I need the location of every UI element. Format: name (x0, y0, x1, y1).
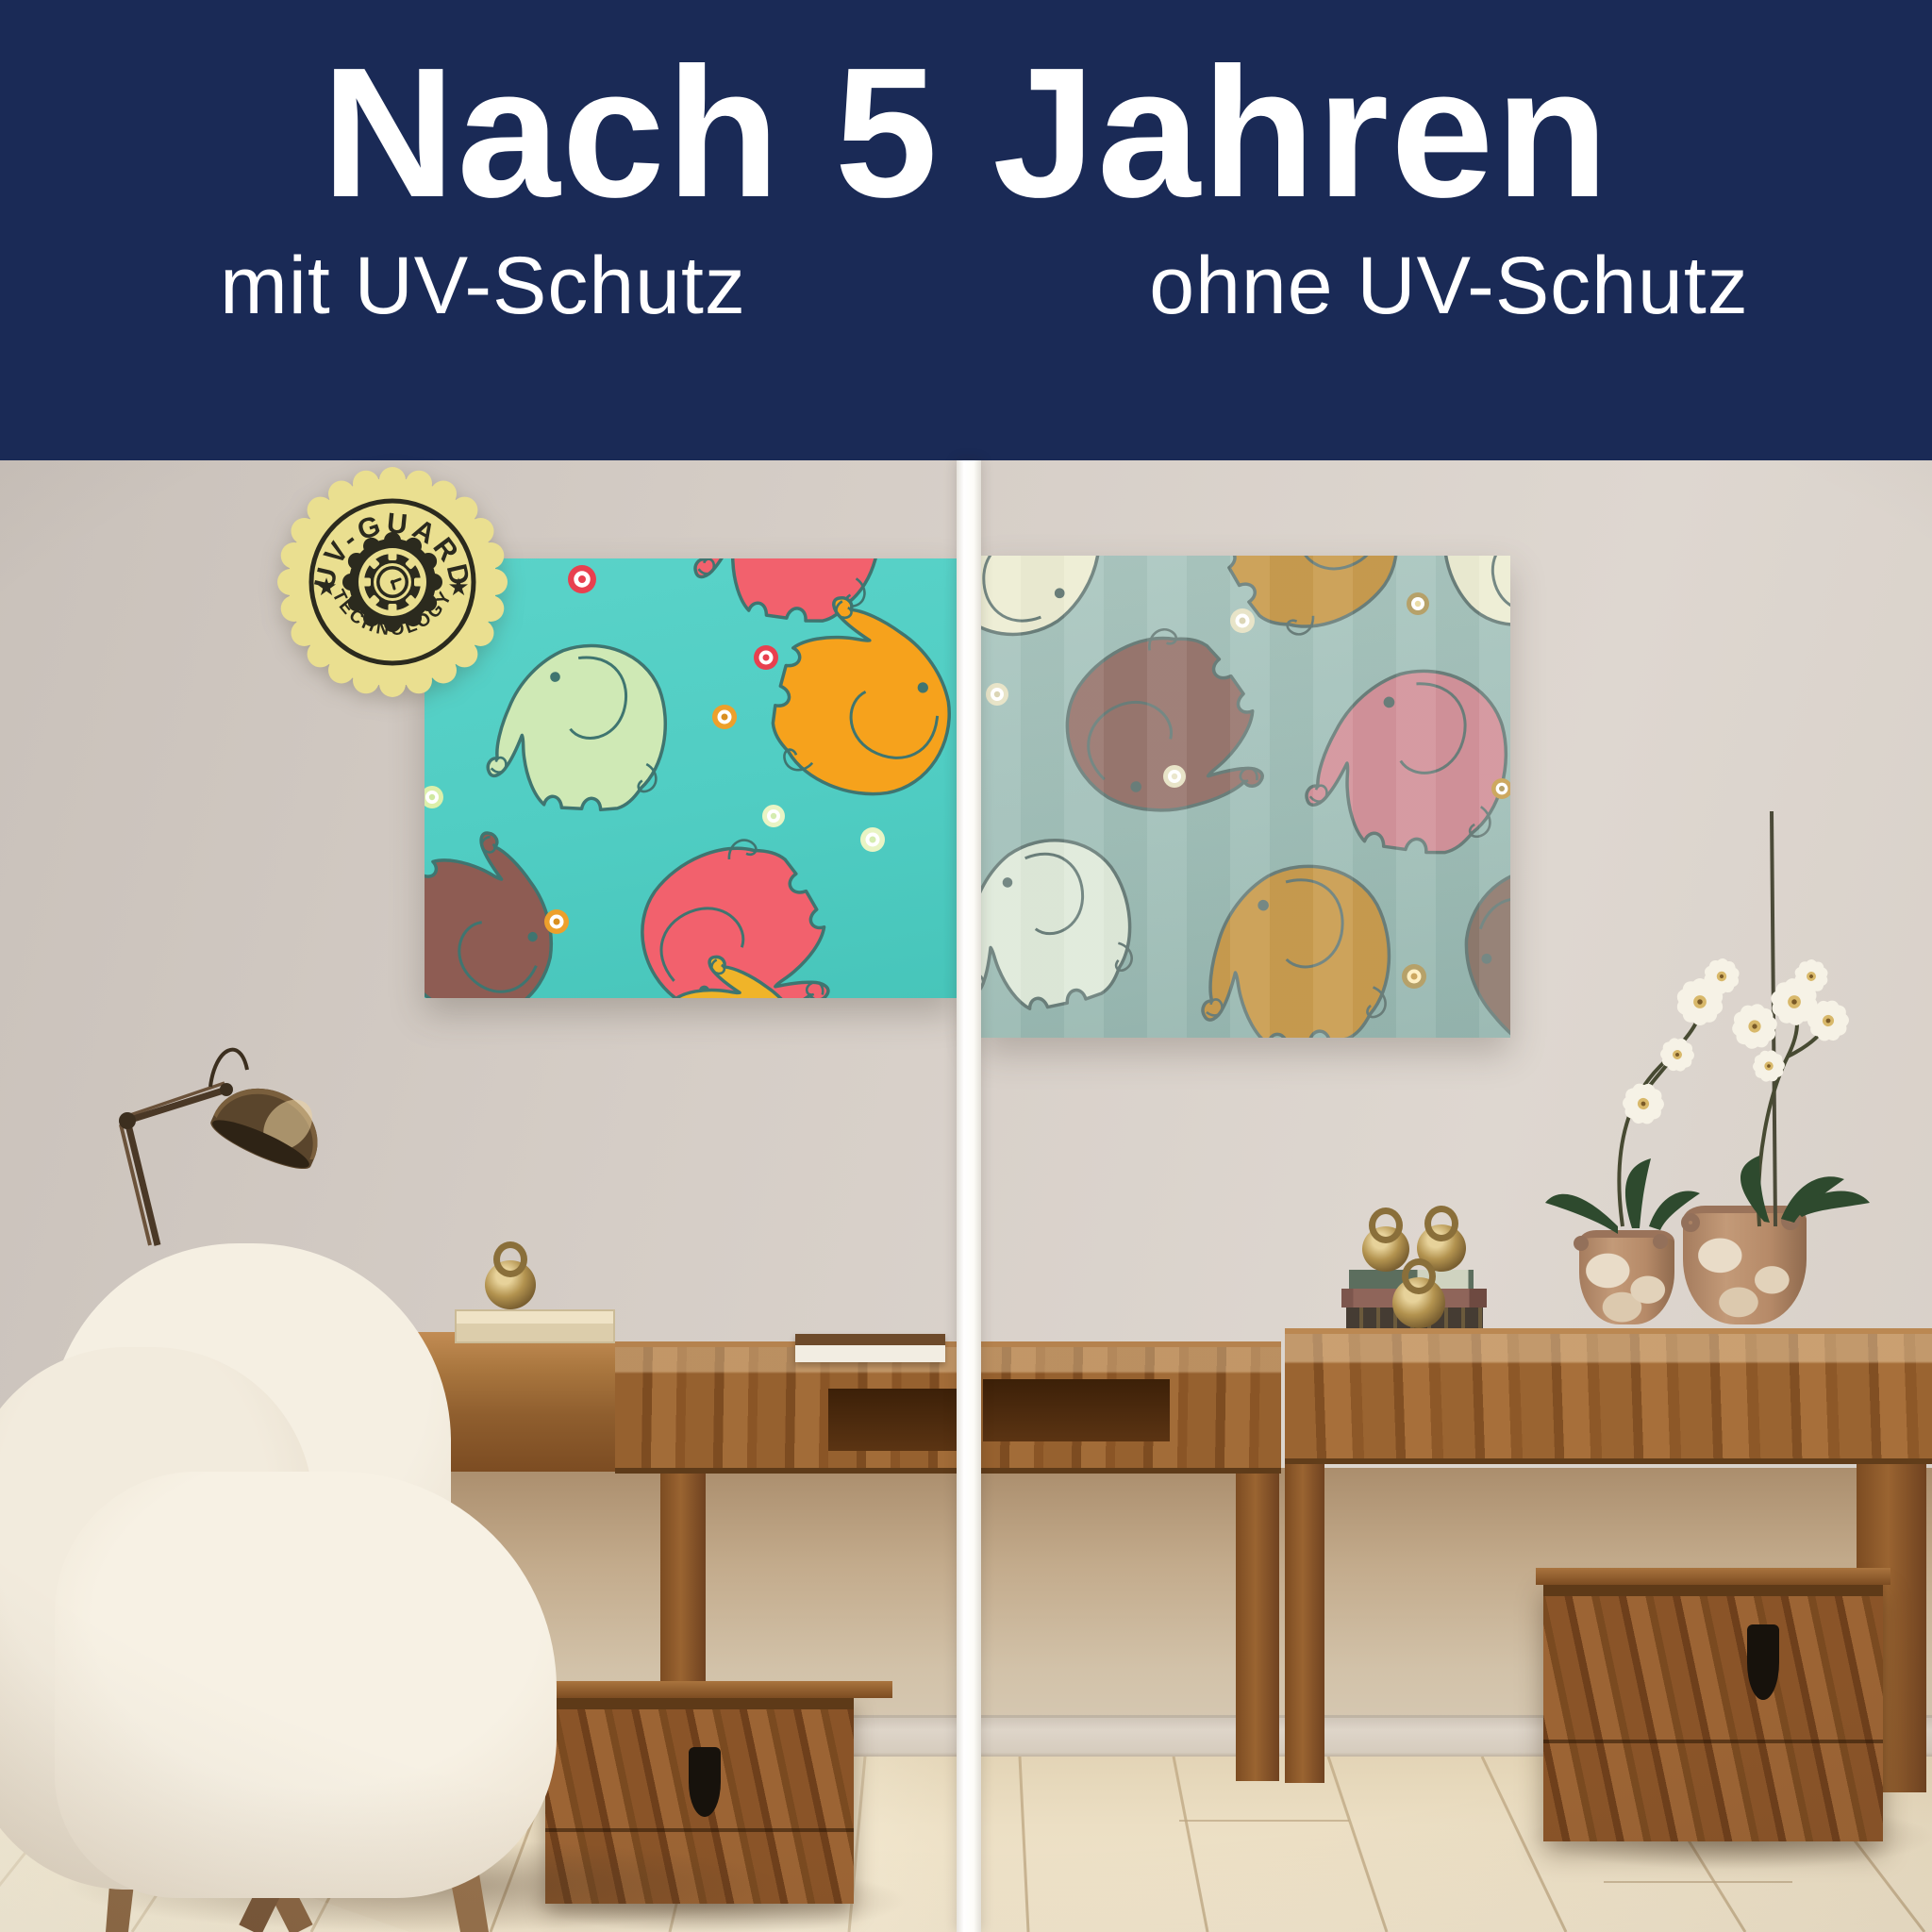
console-table-right (1285, 1328, 1932, 1464)
drawer-recess (983, 1379, 1170, 1441)
orchid-leaves (1545, 1156, 1870, 1234)
header-band: Nach 5 Jahren mit UV-Schutz ohne UV-Schu… (0, 0, 1932, 460)
table-leg (1236, 1474, 1279, 1781)
orchid-blossoms (1613, 948, 1857, 1134)
brass-bell (485, 1260, 536, 1309)
book-on-table (795, 1334, 945, 1362)
lamp-shade (206, 1065, 336, 1177)
brass-bell (1392, 1277, 1445, 1328)
elephant-icon (486, 641, 669, 813)
chest-latch (689, 1747, 721, 1817)
label-with-uv: mit UV-Schutz (0, 240, 966, 333)
star-icon: ★ (315, 573, 337, 601)
lamp-cord (210, 1050, 247, 1087)
orchid-flowers (1528, 783, 1932, 1255)
chest-latch (1747, 1624, 1779, 1700)
label-without-uv: ohne UV-Schutz (966, 240, 1932, 333)
fade-streaks (981, 556, 1510, 1038)
comparison-graphic: Nach 5 Jahren mit UV-Schutz ohne UV-Schu… (0, 0, 1932, 1932)
armchair-seat (55, 1472, 557, 1898)
page-title: Nach 5 Jahren (322, 36, 1610, 230)
chest-lid (538, 1681, 892, 1698)
column-labels: mit UV-Schutz ohne UV-Schutz (0, 240, 1932, 333)
brass-bell (1362, 1226, 1409, 1272)
desk-lamp (57, 981, 358, 1283)
drawer-recess (828, 1389, 957, 1451)
chest-lid (1536, 1568, 1890, 1585)
uv-guard-badge: UV-GUARD TECHNOLOGY ★ ★ (277, 467, 508, 697)
wooden-tray (455, 1309, 615, 1343)
table-leg (1285, 1464, 1324, 1783)
divider-line (957, 460, 981, 1932)
elephant-icon (425, 814, 594, 998)
mural-without-uv (981, 556, 1510, 1038)
star-icon: ★ (447, 573, 469, 601)
clock-icon (380, 570, 406, 595)
elephant-icon (758, 588, 957, 811)
chest-seam (1543, 1740, 1883, 1743)
storage-chest-right (1543, 1581, 1883, 1841)
chest-seam (545, 1828, 854, 1832)
